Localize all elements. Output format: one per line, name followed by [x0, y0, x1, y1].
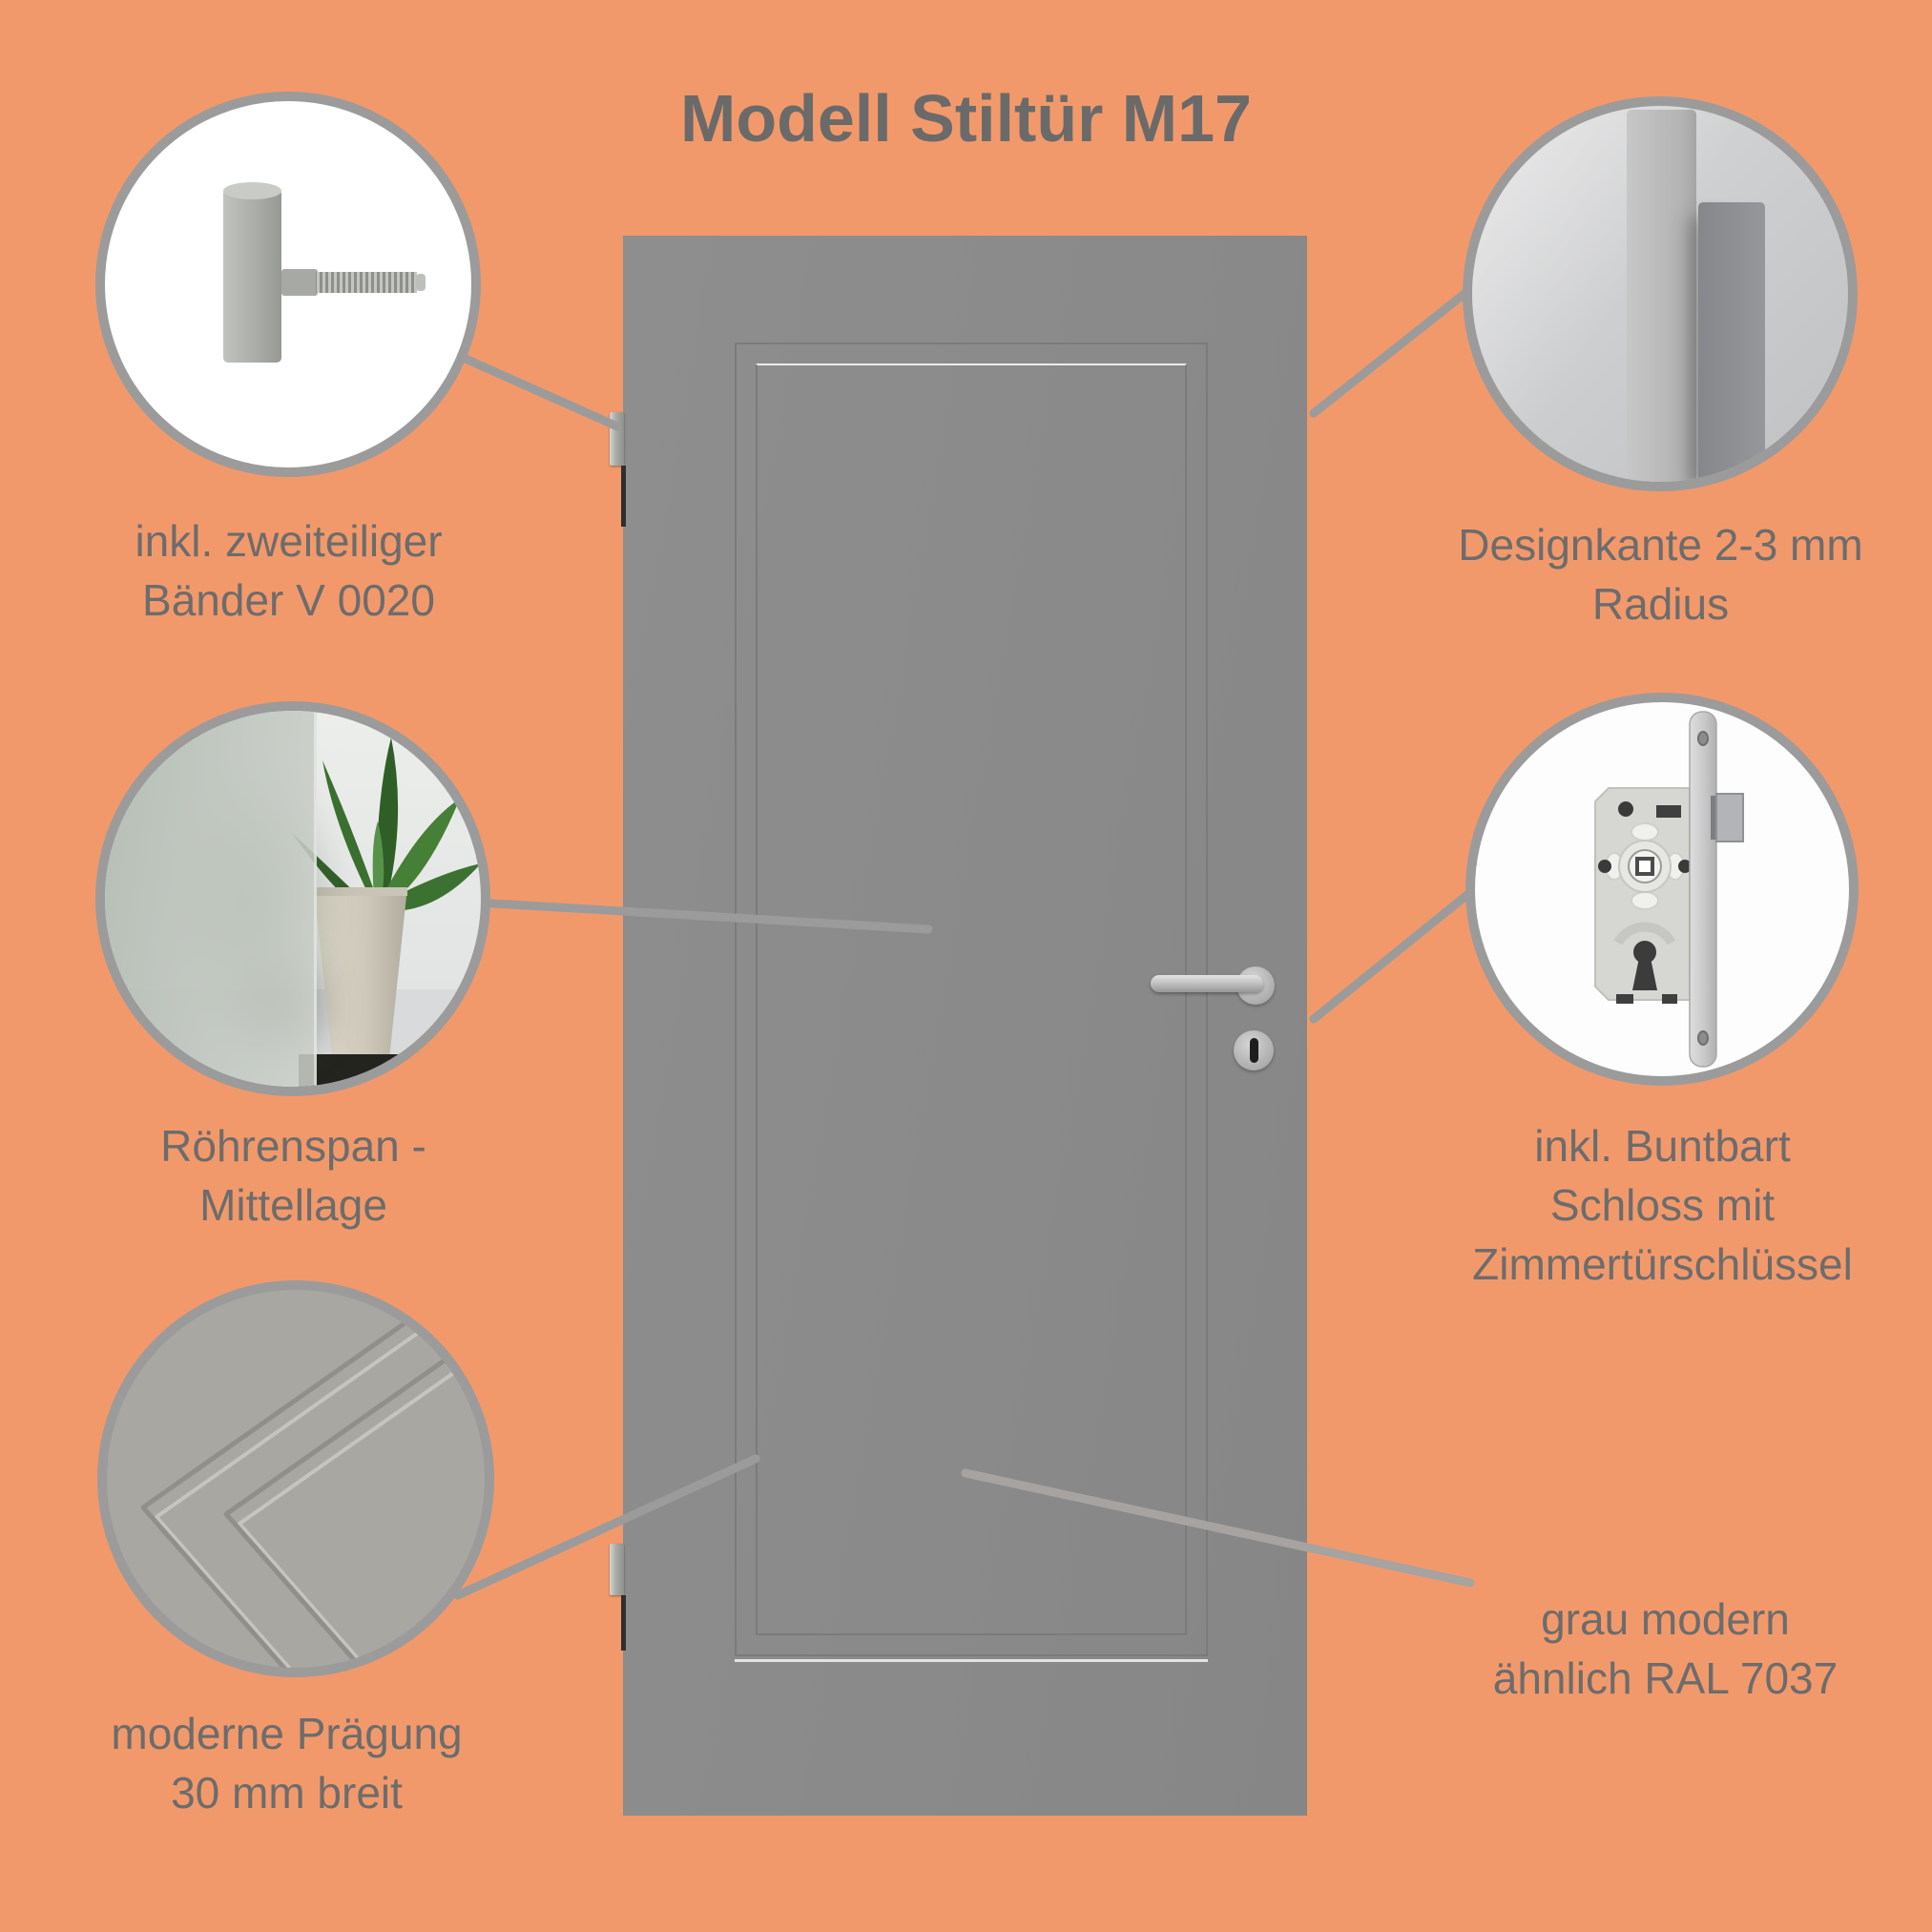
keyhole-icon: [1250, 1038, 1258, 1063]
connector-design-edge: [1314, 279, 1484, 413]
caption-color: grau modern ähnlich RAL 7037: [1405, 1589, 1925, 1708]
callout-circle-emboss: [97, 1280, 494, 1677]
door-edge-front-icon: [1627, 110, 1696, 482]
emboss-chevron-icon: [107, 1290, 485, 1668]
caption-design-edge: Designkante 2-3 mm Radius: [1401, 515, 1921, 634]
door-hinge-bottom-slot: [621, 1595, 626, 1651]
door-hinge-top-slot: [621, 466, 626, 527]
door-illustration: [623, 236, 1307, 1816]
page-title: Modell Stiltür M17: [0, 80, 1932, 156]
keyhole-escutcheon-icon: [1234, 1030, 1274, 1070]
mortise-lock-icon: [1475, 702, 1849, 1076]
infographic: Modell Stiltür M17: [0, 0, 1932, 1932]
door-panel-inner-groove: [756, 364, 1187, 1635]
connector-hinge: [448, 351, 617, 426]
frosted-glass-pane-icon: [95, 701, 317, 1096]
caption-hinge: inkl. zweiteiliger Bänder V 0020: [29, 511, 549, 630]
caption-emboss: moderne Prägung 30 mm breit: [27, 1704, 547, 1822]
callout-circle-core: [95, 701, 490, 1096]
door-edge-back-icon: [1698, 202, 1765, 482]
door-hinge-top-icon: [610, 412, 624, 466]
door-panel-bottom-highlight: [735, 1659, 1208, 1662]
connector-lock: [1314, 885, 1479, 1019]
caption-core: Röhrenspan - Mittellage: [33, 1116, 553, 1235]
door-handle-lever-icon: [1151, 975, 1263, 992]
callout-circle-lock: [1465, 693, 1859, 1086]
caption-lock: inkl. Buntbart Schloss mit Zimmertürschl…: [1402, 1116, 1922, 1294]
door-hinge-bottom-icon: [610, 1544, 624, 1595]
